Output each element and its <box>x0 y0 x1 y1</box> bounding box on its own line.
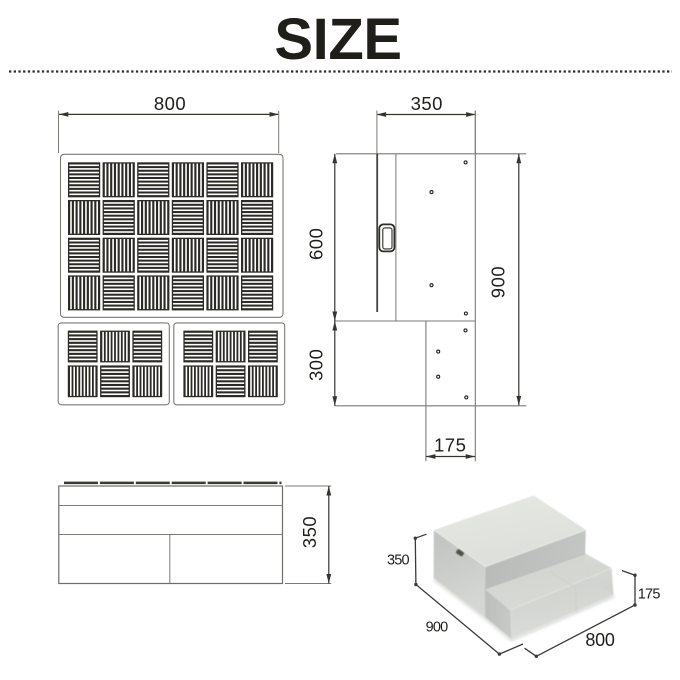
svg-text:SIZE: SIZE <box>274 7 401 72</box>
svg-text:600: 600 <box>306 228 327 260</box>
svg-text:900: 900 <box>487 266 508 298</box>
svg-text:350: 350 <box>387 552 410 568</box>
svg-text:175: 175 <box>434 434 466 455</box>
svg-text:800: 800 <box>585 630 614 650</box>
svg-text:350: 350 <box>411 93 443 114</box>
svg-text:800: 800 <box>154 93 186 114</box>
svg-text:900: 900 <box>426 620 449 636</box>
svg-text:175: 175 <box>638 587 661 603</box>
svg-text:300: 300 <box>306 349 327 381</box>
svg-text:350: 350 <box>299 516 320 548</box>
